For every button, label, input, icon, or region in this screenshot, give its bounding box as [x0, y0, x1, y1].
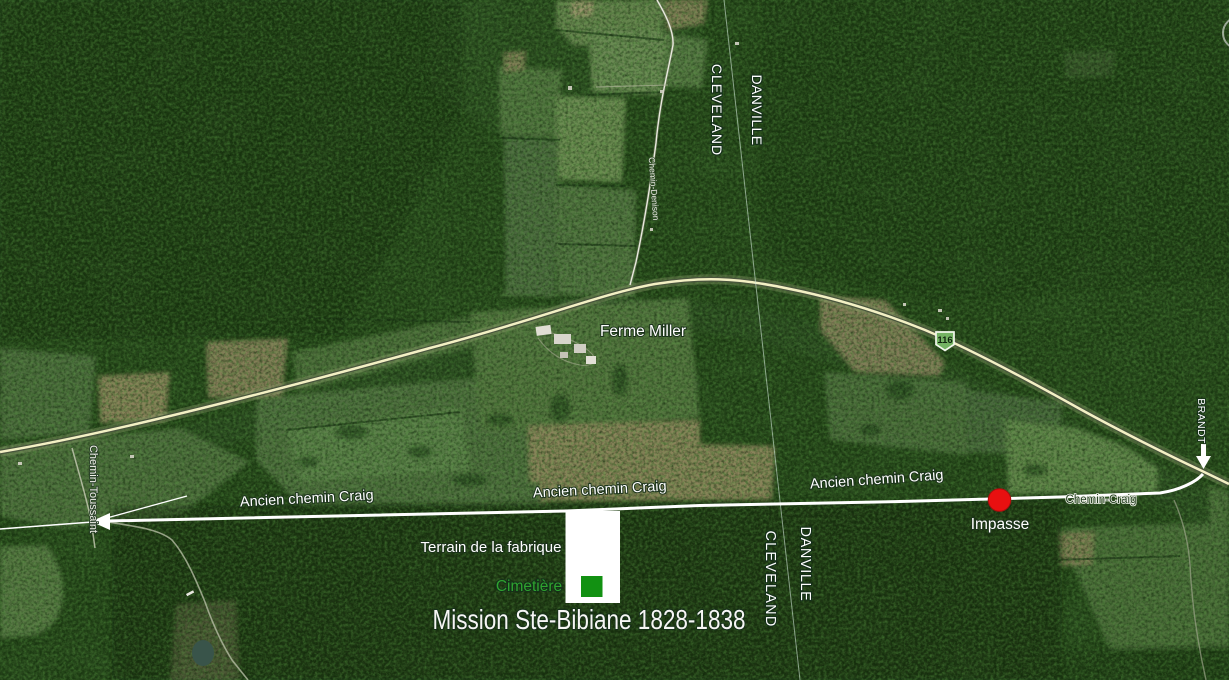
svg-text:Mission Ste-Bibiane 1828-1838: Mission Ste-Bibiane 1828-1838: [432, 605, 745, 636]
svg-text:Chemin-Craig: Chemin-Craig: [1066, 494, 1137, 506]
svg-text:Cimetière: Cimetière: [496, 578, 562, 595]
svg-text:DANVILLE: DANVILLE: [797, 527, 813, 602]
svg-text:BRANDT: BRANDT: [1195, 398, 1207, 444]
svg-text:CLEVELAND: CLEVELAND: [762, 530, 778, 627]
svg-text:116: 116: [937, 335, 952, 346]
svg-text:Chemin-Toussaint: Chemin-Toussaint: [87, 445, 99, 533]
svg-text:Terrain de la fabrique: Terrain de la fabrique: [421, 539, 562, 556]
svg-text:CLEVELAND: CLEVELAND: [709, 64, 725, 156]
svg-text:Ferme Miller: Ferme Miller: [600, 323, 686, 340]
svg-text:Impasse: Impasse: [971, 516, 1030, 533]
svg-text:DANVILLE: DANVILLE: [749, 75, 765, 146]
